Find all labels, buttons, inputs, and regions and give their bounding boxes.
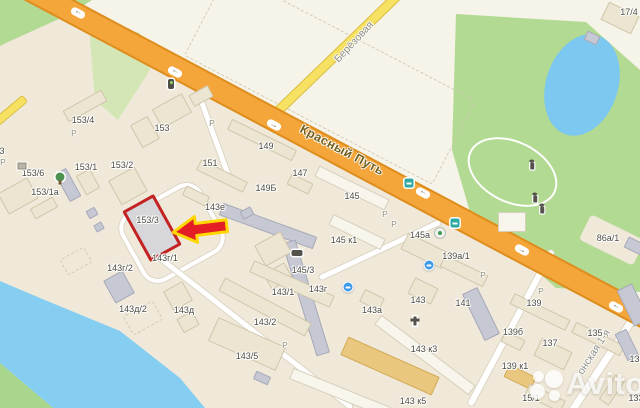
building-label: 153/6 <box>22 168 45 178</box>
plot-boundary <box>59 246 92 275</box>
building-label: 143г <box>309 284 327 294</box>
building <box>498 212 526 232</box>
parking-marker: Р <box>71 128 77 138</box>
building-label: 143е <box>205 202 225 212</box>
building-label: 143 к3 <box>411 344 437 354</box>
building <box>462 287 500 341</box>
building-label: 139б <box>503 327 523 337</box>
building-label: 143/2 <box>254 317 277 327</box>
road-berezovaya-stub <box>0 95 28 128</box>
building-label: 145 к1 <box>331 235 357 245</box>
building-label: 153/2 <box>111 160 134 170</box>
building-label: 143д/2 <box>119 304 147 314</box>
building-label: 139 <box>526 298 541 308</box>
pointer-arrow <box>168 208 232 249</box>
transit-stop-icon <box>451 219 460 228</box>
building <box>103 270 135 303</box>
park-path <box>456 123 569 220</box>
building-label: 143/1 <box>272 287 295 297</box>
building-label: 153/1а <box>31 187 59 197</box>
statue-icon <box>540 207 544 214</box>
monument-icon <box>414 317 417 326</box>
building-label: 15/1 <box>522 393 540 403</box>
transit-stop-icon <box>405 179 414 188</box>
building <box>93 221 105 232</box>
building-label: 3 <box>0 146 5 156</box>
building-label: 133 <box>628 393 640 403</box>
building-label: 133 <box>629 354 640 364</box>
building-label: 147 <box>292 168 307 178</box>
building-label: 143а <box>362 305 382 315</box>
building-label: 139 к1 <box>502 361 528 371</box>
shop-poi-icon <box>424 260 435 271</box>
traffic-light-icon <box>168 79 174 89</box>
parking-marker: Р <box>282 340 288 350</box>
building-label: 143 к5 <box>400 396 426 406</box>
building <box>85 207 98 220</box>
building-label: 137 <box>542 338 557 348</box>
building-label: 145/3 <box>292 265 315 275</box>
building-label: 143г/2 <box>107 263 133 273</box>
building-label: 149Б <box>256 183 277 193</box>
parking-marker: Р <box>382 209 388 219</box>
building <box>624 236 640 257</box>
tree-icon <box>56 173 65 182</box>
building-label: 151 <box>202 158 217 168</box>
building <box>253 371 271 386</box>
parking-marker: Р <box>209 118 215 128</box>
target-building-label: 153/3 <box>136 215 159 225</box>
parking-marker: Р <box>0 157 6 167</box>
building-label: 153/4 <box>72 115 95 125</box>
parking-marker: Р <box>538 286 544 296</box>
parking-marker: Р <box>391 219 397 229</box>
statue-icon <box>530 163 534 170</box>
building-label: 141 <box>455 298 470 308</box>
building-label: 145 <box>344 191 359 201</box>
building-label: 149 <box>258 141 273 151</box>
building-label: 86а/1 <box>597 233 620 243</box>
river-bank-green <box>0 355 60 408</box>
map-canvas[interactable]: →→→→→→ <box>0 0 640 408</box>
fountain-icon <box>434 227 446 239</box>
building-label: 143д <box>174 305 194 315</box>
building-label: 17/4 <box>620 7 638 17</box>
building-label: 153 <box>154 123 169 133</box>
statue-icon <box>533 196 537 203</box>
avito-logo-circle <box>545 370 563 388</box>
building-label: 143г/1 <box>152 253 178 263</box>
building-label: 143 <box>410 295 425 305</box>
building <box>584 30 601 45</box>
building-label: 153/1 <box>75 162 98 172</box>
kiosk-icon <box>18 163 27 170</box>
building-label: 143/5 <box>236 351 259 361</box>
building-label: 145а <box>410 230 430 240</box>
shop-poi-icon <box>343 282 354 293</box>
car-icon <box>292 250 303 256</box>
building <box>599 374 626 406</box>
parking-marker: Р <box>480 270 486 280</box>
pond <box>532 24 633 145</box>
building-label: 139а/1 <box>442 251 470 261</box>
